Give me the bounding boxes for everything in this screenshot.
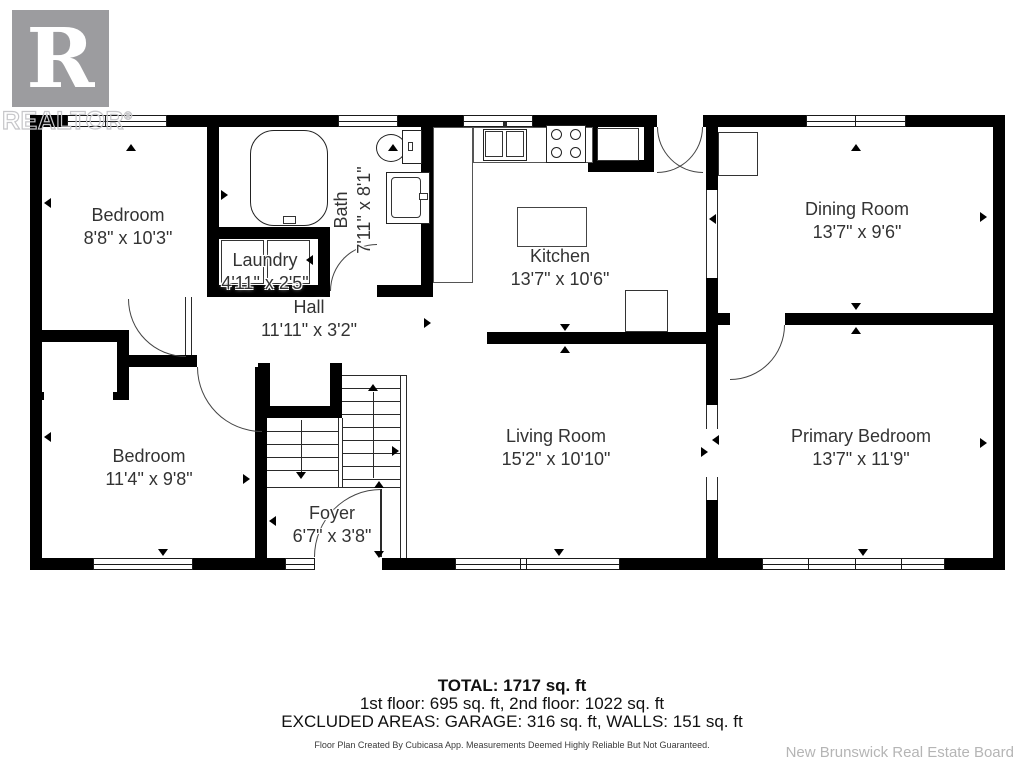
dimension-tick xyxy=(560,346,570,353)
stove xyxy=(546,125,586,163)
room-label-kitchen: Kitchen 13'7" x 10'6" xyxy=(511,245,610,291)
room-label-dining: Dining Room 13'7" x 9'6" xyxy=(805,198,909,244)
wall xyxy=(382,558,455,570)
vanity-sink xyxy=(391,177,421,218)
wall xyxy=(993,115,1005,570)
kitchen-sink xyxy=(483,129,527,161)
dimension-tick xyxy=(851,327,861,334)
stair-tread xyxy=(267,470,338,471)
door-arc xyxy=(128,299,186,357)
room-label-foyer: Foyer 6'7" x 3'8" xyxy=(293,502,372,548)
room-name: Bedroom xyxy=(105,445,192,468)
window-mullion xyxy=(520,559,521,569)
total-area: TOTAL: 1717 sq. ft xyxy=(0,676,1024,695)
opening-line xyxy=(706,405,707,429)
dimension-tick xyxy=(424,318,431,328)
stair-tread xyxy=(342,427,400,428)
stair-up-arrowhead xyxy=(368,384,378,391)
sink-basin xyxy=(506,131,524,157)
registered-trademark-icon: ® xyxy=(124,111,133,123)
wall xyxy=(620,558,762,570)
dimension-tick xyxy=(392,446,399,456)
wall xyxy=(718,313,730,325)
dimension-tick xyxy=(269,516,276,526)
partition-line xyxy=(191,297,192,355)
attribution: New Brunswick Real Estate Board xyxy=(786,744,1014,761)
wall xyxy=(193,558,285,570)
stair-tread xyxy=(267,444,338,445)
window xyxy=(806,115,906,127)
dimension-tick xyxy=(701,447,708,457)
area-summary: TOTAL: 1717 sq. ft 1st floor: 695 sq. ft… xyxy=(0,676,1024,750)
excluded-areas: EXCLUDED AREAS: GARAGE: 316 sq. ft, WALL… xyxy=(0,713,1024,731)
sink-basin xyxy=(485,131,503,157)
room-name: Laundry xyxy=(221,249,308,272)
wall xyxy=(30,330,127,342)
dimension-tick xyxy=(709,214,716,224)
bathtub xyxy=(250,130,328,226)
room-dims: 11'11" x 3'2" xyxy=(261,319,357,342)
partition-line xyxy=(406,375,407,558)
window-mullion xyxy=(855,116,856,126)
refrigerator-nook xyxy=(597,128,639,161)
wall xyxy=(113,392,129,400)
wall xyxy=(207,127,219,297)
realtor-logo: R xyxy=(12,10,109,107)
dimension-tick xyxy=(158,549,168,556)
room-name: Bath xyxy=(330,166,353,253)
wall xyxy=(703,115,806,127)
wall xyxy=(644,127,654,167)
kitchen-counter xyxy=(433,127,473,283)
dimension-tick xyxy=(44,198,51,208)
stair-tread xyxy=(342,401,400,402)
kitchen-appliance xyxy=(625,290,668,332)
stair-divider xyxy=(338,418,339,487)
room-dims: 8'8" x 10'3" xyxy=(84,227,173,250)
stair-tread xyxy=(342,414,400,415)
opening-line xyxy=(717,477,718,500)
dimension-tick xyxy=(243,474,250,484)
room-dims: 13'7" x 9'6" xyxy=(805,221,909,244)
wall xyxy=(706,278,718,313)
dimension-tick xyxy=(858,549,868,556)
room-label-primary: Primary Bedroom 13'7" x 11'9" xyxy=(791,425,931,471)
room-name: Bedroom xyxy=(84,204,173,227)
room-label-hall: Hall 11'11" x 3'2" xyxy=(261,296,357,342)
opening-line xyxy=(717,190,718,278)
room-label-living: Living Room 15'2" x 10'10" xyxy=(502,425,611,471)
wall xyxy=(487,332,706,344)
dimension-tick xyxy=(980,212,987,222)
wall xyxy=(30,115,42,570)
stove-burner xyxy=(570,147,581,158)
wall xyxy=(398,115,463,127)
window xyxy=(463,115,533,127)
dimension-tick xyxy=(851,144,861,151)
window xyxy=(762,558,945,570)
stair-direction-arrow xyxy=(301,420,302,474)
wall xyxy=(706,313,718,405)
window xyxy=(338,115,398,127)
wall xyxy=(207,227,330,239)
room-dims: 4'11" x 2'5" xyxy=(221,272,308,295)
window-mullion xyxy=(526,559,527,569)
room-name: Kitchen xyxy=(511,245,610,268)
room-dims: 15'2" x 10'10" xyxy=(502,448,611,471)
wall xyxy=(906,115,1005,127)
wall xyxy=(706,127,718,190)
vanity-handle xyxy=(419,193,428,200)
wall xyxy=(167,115,338,127)
dimension-tick xyxy=(712,435,719,445)
dimension-tick xyxy=(560,324,570,331)
door-arc xyxy=(730,325,785,380)
window-mullion xyxy=(901,559,902,569)
room-name: Living Room xyxy=(502,425,611,448)
room-name: Hall xyxy=(261,296,357,319)
stove-burner xyxy=(551,147,562,158)
bathtub-faucet xyxy=(283,216,296,224)
wall xyxy=(30,392,44,400)
dimension-tick xyxy=(554,549,564,556)
realtor-wordmark-text: REALTOR xyxy=(2,107,124,135)
opening-line xyxy=(717,405,718,429)
stove-burner xyxy=(570,129,581,140)
room-name: Dining Room xyxy=(805,198,909,221)
dimension-tick xyxy=(980,438,987,448)
stair-tread xyxy=(267,431,338,432)
window xyxy=(93,558,193,570)
dimension-tick xyxy=(388,144,398,151)
room-dims: 11'4" x 9'8" xyxy=(105,468,192,491)
opening-line xyxy=(706,190,707,278)
stair-tread xyxy=(342,466,400,467)
stair-tread xyxy=(267,457,338,458)
room-dims: 13'7" x 10'6" xyxy=(511,268,610,291)
dimension-tick xyxy=(221,190,228,200)
room-label-bedroom2: Bedroom 11'4" x 9'8" xyxy=(105,445,192,491)
room-name: Primary Bedroom xyxy=(791,425,931,448)
dimension-tick xyxy=(851,303,861,310)
toilet-flush-button xyxy=(408,142,413,151)
room-dims: 13'7" x 11'9" xyxy=(791,448,931,471)
room-dims: 6'7" x 3'8" xyxy=(293,525,372,548)
room-label-bath: Bath 7'11" x 8'1" xyxy=(330,166,376,253)
window xyxy=(285,558,315,570)
window-mullion xyxy=(855,559,856,569)
dimension-tick xyxy=(374,551,384,558)
wall xyxy=(258,406,342,418)
wall xyxy=(127,355,197,367)
wall xyxy=(706,500,718,558)
room-name: Foyer xyxy=(293,502,372,525)
floor-areas: 1st floor: 695 sq. ft, 2nd floor: 1022 s… xyxy=(0,695,1024,713)
stair-down-arrowhead xyxy=(296,472,306,479)
dimension-tick xyxy=(374,481,384,488)
wall xyxy=(785,313,993,325)
stair-edge xyxy=(342,375,406,376)
realtor-wordmark: REALTOR® xyxy=(2,107,133,136)
dimension-tick xyxy=(44,432,51,442)
wall xyxy=(377,285,433,297)
window-mullion xyxy=(808,559,809,569)
room-dims: 7'11" x 8'1" xyxy=(353,166,376,253)
stair-tread xyxy=(342,440,400,441)
opening-line xyxy=(706,477,707,500)
room-label-bedroom1: Bedroom 8'8" x 10'3" xyxy=(84,204,173,250)
stove-burner xyxy=(551,129,562,140)
window xyxy=(455,558,620,570)
partition-line xyxy=(400,375,401,558)
door-arc xyxy=(197,367,262,432)
kitchen-island xyxy=(517,207,587,247)
dimension-tick xyxy=(209,255,216,265)
realtor-logo-letter: R xyxy=(26,18,94,100)
room-label-laundry: Laundry 4'11" x 2'5" xyxy=(221,249,308,295)
stair-tread xyxy=(342,479,400,480)
bathroom-vanity xyxy=(386,172,430,224)
stair-direction-arrow xyxy=(373,392,374,478)
floor-plan-canvas: R REALTOR® xyxy=(0,0,1024,768)
refrigerator xyxy=(718,132,758,176)
dimension-tick xyxy=(126,144,136,151)
